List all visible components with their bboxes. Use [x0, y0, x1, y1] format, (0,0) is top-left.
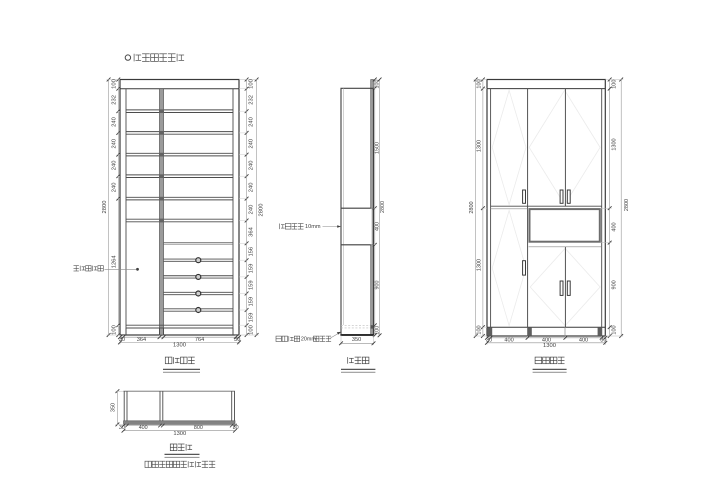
svg-text:240: 240 [112, 161, 118, 171]
svg-text:240: 240 [112, 117, 118, 127]
svg-text:1300: 1300 [611, 138, 617, 150]
svg-text:240: 240 [248, 117, 254, 127]
svg-text:100: 100 [476, 325, 482, 334]
svg-text:232: 232 [248, 95, 254, 105]
svg-text:100: 100 [476, 79, 482, 88]
svg-text:232: 232 [112, 95, 118, 105]
svg-text:1300: 1300 [173, 431, 186, 437]
svg-text:400: 400 [139, 425, 148, 431]
svg-text:2800: 2800 [380, 201, 386, 213]
svg-text:2800: 2800 [469, 201, 475, 213]
svg-text:100: 100 [375, 80, 381, 89]
svg-text:2800: 2800 [258, 204, 264, 217]
svg-text:159: 159 [248, 297, 254, 307]
svg-text:350: 350 [110, 403, 116, 412]
svg-text:400: 400 [611, 222, 617, 231]
svg-text:100: 100 [112, 79, 118, 89]
svg-text:159: 159 [248, 264, 254, 274]
svg-text:100: 100 [375, 326, 381, 335]
svg-text:10mm: 10mm [305, 224, 321, 230]
svg-text:240: 240 [248, 183, 254, 193]
svg-text:2800: 2800 [102, 201, 108, 214]
svg-text:240: 240 [112, 183, 118, 193]
svg-text:1264: 1264 [112, 255, 118, 269]
svg-text:240: 240 [248, 205, 254, 215]
svg-text:1500: 1500 [375, 142, 381, 154]
svg-text:100: 100 [611, 80, 617, 89]
svg-text:350: 350 [352, 337, 361, 343]
svg-text:1300: 1300 [476, 140, 482, 152]
svg-text:2800: 2800 [624, 199, 630, 211]
svg-text:1300: 1300 [476, 259, 482, 271]
svg-text:900: 900 [611, 280, 617, 289]
svg-text:159: 159 [248, 313, 254, 323]
svg-text:900: 900 [375, 281, 381, 290]
svg-text:100: 100 [611, 325, 617, 334]
svg-text:1300: 1300 [173, 343, 186, 349]
svg-text:100: 100 [112, 325, 118, 335]
svg-text:156: 156 [248, 247, 254, 257]
svg-text:240: 240 [112, 139, 118, 149]
svg-text:800: 800 [194, 425, 203, 431]
svg-text:100: 100 [248, 325, 254, 335]
svg-text:400: 400 [375, 222, 381, 231]
svg-text:240: 240 [248, 139, 254, 149]
svg-text:364: 364 [248, 226, 254, 236]
svg-text:1300: 1300 [543, 343, 556, 349]
svg-text:159: 159 [248, 280, 254, 290]
svg-text:240: 240 [248, 161, 254, 171]
svg-text:100: 100 [248, 79, 254, 89]
